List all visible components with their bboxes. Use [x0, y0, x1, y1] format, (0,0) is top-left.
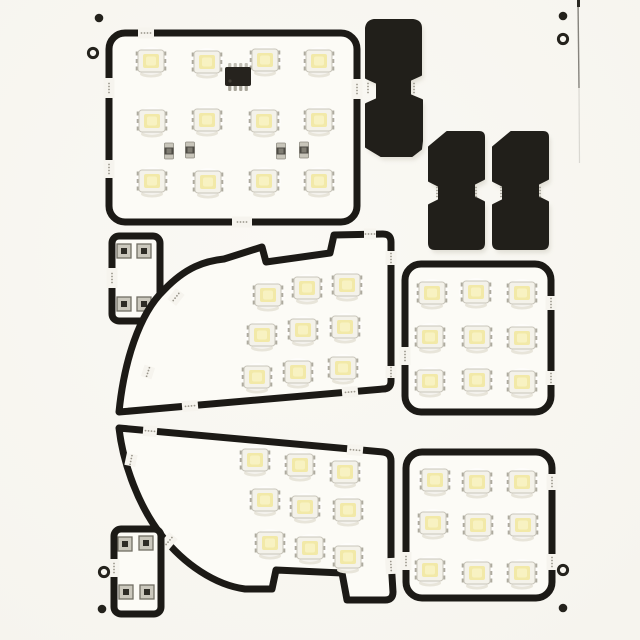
mouse-bite-dot	[404, 351, 406, 353]
led-phosphor-center	[314, 177, 324, 186]
led-phosphor-center	[517, 378, 527, 387]
mouse-bite-dot	[174, 297, 176, 299]
mouse-bite-dot	[169, 539, 171, 541]
led-phosphor-center	[202, 58, 212, 67]
led-phosphor-center	[472, 478, 482, 487]
mouse-bite-dot	[551, 477, 553, 479]
mouse-bite-dot	[500, 187, 502, 189]
led-phosphor-center	[425, 333, 435, 342]
led-phosphor-center	[338, 364, 348, 373]
solder-jumper-pad	[117, 244, 131, 258]
mouse-bite-dot	[240, 221, 242, 223]
v-cut-break-tab	[138, 28, 154, 39]
led-phosphor-center	[472, 569, 482, 578]
mouse-bite-dot	[130, 458, 132, 460]
mouse-bite-dot	[404, 354, 406, 356]
mouse-bite-dot	[131, 455, 133, 457]
mouse-bite-dot	[539, 196, 541, 198]
mouse-bite-dot	[436, 190, 438, 192]
mouse-bite-dot	[171, 537, 173, 539]
mouse-bite-dot	[246, 221, 248, 223]
smd-resistor	[186, 142, 195, 158]
mouse-bite-dot	[113, 572, 115, 574]
mouse-bite-dot	[353, 449, 355, 451]
v-cut-break-tab	[182, 400, 199, 412]
mouse-bite-dot	[191, 405, 193, 407]
mouse-bite-dot	[390, 570, 392, 572]
mouse-bite-dot	[130, 461, 132, 463]
mouse-bite-dot	[111, 282, 113, 284]
v-cut-break-tab	[107, 268, 118, 288]
pad-center	[144, 589, 150, 595]
v-cut-break-tab	[547, 474, 558, 490]
led-phosphor-center	[517, 289, 527, 298]
solder-jumper-pad	[140, 585, 154, 599]
led-phosphor-center	[263, 291, 273, 300]
led-phosphor-center	[314, 116, 324, 125]
pad-center	[141, 248, 147, 254]
mouse-bite-dot	[108, 167, 110, 169]
led-phosphor-center	[314, 57, 324, 66]
mouse-bite-dot	[551, 560, 553, 562]
fiducial-dot	[559, 12, 568, 21]
v-cut-break-tab	[547, 554, 558, 570]
solder-jumper-pad	[137, 244, 151, 258]
led-phosphor-center	[265, 539, 275, 548]
mouse-bite-dot	[550, 301, 552, 303]
mouse-bite-dot	[550, 304, 552, 306]
pad-center	[122, 541, 128, 547]
v-cut-break-tab	[347, 444, 364, 456]
mouse-bite-dot	[351, 391, 353, 393]
mouse-bite-dot	[167, 541, 169, 543]
v-cut-break-tab	[109, 559, 120, 577]
mouse-bite-dot	[172, 300, 174, 302]
mouse-bite-dot	[367, 86, 369, 88]
mouse-bite-dot	[148, 367, 150, 369]
mouse-bite-dot	[350, 449, 352, 451]
solder-jumper-pad	[119, 585, 133, 599]
board-square-led-board-bottom-right	[401, 452, 558, 598]
mouse-bite-dot	[108, 173, 110, 175]
mouse-bite-dot	[475, 193, 477, 195]
pcb-panel-photo	[0, 0, 640, 640]
mouse-bite-dot	[550, 307, 552, 309]
mouse-bite-dot	[550, 373, 552, 375]
mouse-bite-dot	[108, 86, 110, 88]
resistor-element	[302, 148, 307, 153]
led-phosphor-center	[342, 281, 352, 290]
mouse-bite-dot	[150, 32, 152, 34]
mouse-bite-dot	[113, 569, 115, 571]
mouse-bite-dot	[390, 370, 392, 372]
solder-jumper-pad	[118, 537, 132, 551]
pad-center	[143, 540, 149, 546]
v-cut-break-tab	[385, 558, 397, 575]
resistor-element	[188, 148, 193, 153]
led-phosphor-center	[259, 177, 269, 186]
led-phosphor-center	[425, 377, 435, 386]
ic-pin1-dot	[228, 79, 231, 82]
smd-resistor	[165, 143, 174, 159]
mouse-bite-dot	[356, 93, 358, 95]
mouse-bite-dot	[500, 193, 502, 195]
mouse-bite-dot	[178, 293, 180, 295]
mouse-bite-dot	[243, 221, 245, 223]
mouse-bite-dot	[390, 256, 392, 258]
mouse-bite-dot	[413, 92, 415, 94]
mouse-bite-dot	[390, 376, 392, 378]
resistor-element	[167, 149, 172, 154]
mouse-bite-dot	[354, 391, 356, 393]
photo-edge-tick	[577, 0, 580, 7]
mouse-bite-dot	[405, 565, 407, 567]
led-phosphor-center	[472, 333, 482, 342]
mouse-bite-dot	[550, 298, 552, 300]
mouse-bite-dot	[237, 221, 239, 223]
mouse-bite-dot	[404, 360, 406, 362]
mouse-bite-dot	[185, 405, 187, 407]
mouse-bite-dot	[550, 376, 552, 378]
mouse-bite-dot	[108, 89, 110, 91]
led-phosphor-center	[259, 117, 269, 126]
mouse-bite-dot	[111, 276, 113, 278]
solder-jumper-pad	[117, 297, 131, 311]
led-phosphor-center	[298, 326, 308, 335]
mouse-bite-dot	[390, 373, 392, 375]
pad-center	[121, 301, 127, 307]
led-phosphor-center	[260, 496, 270, 505]
mouse-bite-dot	[539, 187, 541, 189]
ic-body	[225, 67, 251, 86]
fiducial-dot	[98, 605, 107, 614]
mouse-bite-dot	[108, 164, 110, 166]
mouse-bite-dot	[367, 89, 369, 91]
mouse-bite-dot	[151, 430, 153, 432]
mouse-bite-dot	[550, 382, 552, 384]
led-phosphor-center	[517, 478, 527, 487]
led-phosphor-center	[427, 289, 437, 298]
mouse-bite-dot	[413, 89, 415, 91]
mouse-bite-dot	[147, 32, 149, 34]
led-phosphor-center	[252, 373, 262, 382]
led-phosphor-center	[428, 519, 438, 528]
mouse-bite-dot	[551, 557, 553, 559]
mouse-bite-dot	[404, 357, 406, 359]
led-phosphor-center	[517, 569, 527, 578]
mouse-bite-dot	[413, 86, 415, 88]
mouse-bite-dot	[147, 373, 149, 375]
led-phosphor-center	[260, 56, 270, 65]
mouse-bite-dot	[390, 561, 392, 563]
mouse-bite-dot	[539, 190, 541, 192]
v-cut-break-tab	[104, 78, 115, 98]
led-phosphor-center	[147, 177, 157, 186]
mouse-bite-dot	[359, 449, 361, 451]
mouse-bite-dot	[405, 562, 407, 564]
led-phosphor-center	[257, 331, 267, 340]
led-phosphor-center	[340, 468, 350, 477]
led-phosphor-center	[250, 456, 260, 465]
mouse-bite-dot	[356, 90, 358, 92]
led-phosphor-center	[471, 288, 481, 297]
mouse-bite-dot	[405, 556, 407, 558]
fiducial-dot	[559, 604, 568, 613]
mouse-bite-dot	[390, 564, 392, 566]
led-phosphor-center	[340, 323, 350, 332]
mouse-bite-dot	[148, 370, 150, 372]
mouse-bite-dot	[348, 391, 350, 393]
mouse-bite-dot	[108, 83, 110, 85]
mouse-bite-dot	[551, 480, 553, 482]
mouse-bite-dot	[551, 566, 553, 568]
v-cut-break-tab	[400, 347, 411, 365]
mouse-bite-dot	[539, 193, 541, 195]
mouse-bite-dot	[367, 92, 369, 94]
led-phosphor-center	[343, 553, 353, 562]
mouse-bite-dot	[145, 430, 147, 432]
led-phosphor-center	[147, 117, 157, 126]
mouse-bite-dot	[356, 449, 358, 451]
mouse-bite-dot	[356, 87, 358, 89]
photo-edge-line	[578, 0, 579, 88]
mouse-bite-dot	[550, 379, 552, 381]
mouse-bite-dot	[551, 486, 553, 488]
mouse-bite-dot	[113, 566, 115, 568]
mouse-bite-dot	[390, 259, 392, 261]
mouse-bite-dot	[146, 375, 148, 377]
mouse-bite-dot	[390, 253, 392, 255]
led-phosphor-center	[343, 506, 353, 515]
mouse-bite-dot	[500, 190, 502, 192]
mouse-bite-dot	[371, 233, 373, 235]
mouse-bite-dot	[405, 559, 407, 561]
led-phosphor-center	[302, 284, 312, 293]
mouse-bite-dot	[436, 193, 438, 195]
led-phosphor-center	[293, 368, 303, 377]
pcb-panel-photo-frame: White snap-apart PCB panel of car interi…	[0, 0, 640, 640]
mouse-bite-dot	[165, 544, 167, 546]
pad-center	[123, 589, 129, 595]
smd-resistor	[277, 143, 286, 159]
fiducial-dot	[95, 14, 104, 23]
mouse-bite-dot	[176, 295, 178, 297]
mouse-bite-dot	[436, 196, 438, 198]
mouse-bite-dot	[413, 83, 415, 85]
led-phosphor-center	[425, 566, 435, 575]
mouse-bite-dot	[111, 279, 113, 281]
board-square-led-board-right	[400, 264, 557, 412]
mouse-bite-dot	[144, 32, 146, 34]
mouse-bite-dot	[148, 430, 150, 432]
mouse-bite-dot	[374, 233, 376, 235]
mouse-bite-dot	[390, 367, 392, 369]
pad-center	[141, 301, 147, 307]
led-phosphor-center	[146, 57, 156, 66]
smd-resistor	[300, 142, 309, 158]
pad-center	[121, 248, 127, 254]
mouse-bite-dot	[141, 32, 143, 34]
mouse-bite-dot	[475, 190, 477, 192]
mouse-bite-dot	[500, 196, 502, 198]
mouse-bite-dot	[356, 84, 358, 86]
v-cut-break-tab	[104, 160, 115, 178]
mouse-bite-dot	[551, 483, 553, 485]
v-cut-break-tab	[342, 386, 359, 398]
led-phosphor-center	[473, 521, 483, 530]
mouse-bite-dot	[475, 196, 477, 198]
board-jumper-board-bottom	[109, 529, 162, 614]
led-phosphor-center	[203, 178, 213, 187]
led-phosphor-center	[430, 476, 440, 485]
photo-edge-line-faint	[579, 88, 580, 163]
resistor-element	[279, 149, 284, 154]
led-phosphor-center	[295, 461, 305, 470]
led-phosphor-center	[202, 116, 212, 125]
mouse-bite-dot	[194, 405, 196, 407]
board-map-light-board	[104, 28, 363, 228]
mouse-bite-dot	[129, 464, 131, 466]
led-phosphor-center	[300, 503, 310, 512]
led-phosphor-center	[517, 334, 527, 343]
mouse-bite-dot	[551, 563, 553, 565]
mouse-bite-dot	[390, 262, 392, 264]
mouse-bite-dot	[368, 233, 370, 235]
v-cut-break-tab	[352, 79, 363, 99]
mouse-bite-dot	[108, 92, 110, 94]
led-phosphor-center	[472, 376, 482, 385]
led-phosphor-center	[518, 521, 528, 530]
mouse-bite-dot	[345, 391, 347, 393]
mouse-bite-dot	[436, 187, 438, 189]
v-cut-break-tab	[401, 552, 412, 570]
mouse-bite-dot	[365, 233, 367, 235]
mouse-bite-dot	[108, 170, 110, 172]
mouse-bite-dot	[111, 273, 113, 275]
mouse-bite-dot	[475, 187, 477, 189]
mouse-bite-dot	[154, 430, 156, 432]
solder-jumper-pad	[139, 536, 153, 550]
mouse-bite-dot	[188, 405, 190, 407]
mouse-bite-dot	[390, 567, 392, 569]
led-phosphor-center	[305, 544, 315, 553]
mouse-bite-dot	[113, 563, 115, 565]
mouse-bite-dot	[367, 83, 369, 85]
v-cut-break-tab	[232, 217, 252, 228]
